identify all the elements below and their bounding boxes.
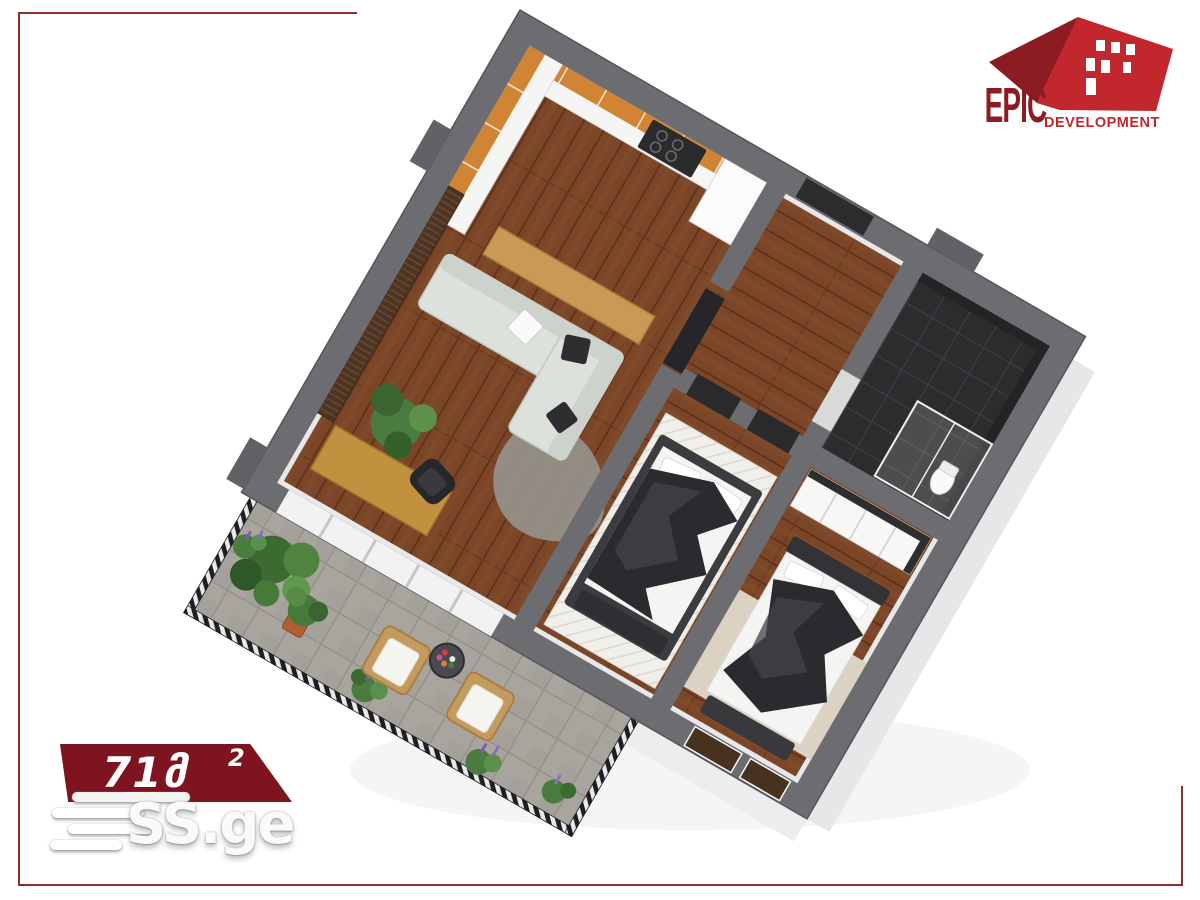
epic-development-logo: EPIC DEVELOPMENT bbox=[960, 0, 1200, 160]
logo-tagline-text: DEVELOPMENT bbox=[1044, 115, 1160, 131]
frame-border-right bbox=[1181, 786, 1183, 886]
logo-brand-text: EPIC bbox=[985, 79, 1047, 133]
area-exponent: 2 bbox=[228, 744, 245, 772]
watermark-bar-icon bbox=[50, 840, 122, 850]
frame-border-left bbox=[18, 12, 20, 886]
watermark-text: SS.ge bbox=[126, 792, 294, 857]
black-pillow bbox=[560, 334, 591, 365]
ssge-watermark: SS.ge bbox=[48, 786, 328, 870]
frame-border-top bbox=[18, 12, 357, 14]
frame-border-bottom bbox=[18, 884, 1183, 886]
listing-image: EPIC DEVELOPMENT 71მ 2 SS.ge bbox=[0, 0, 1200, 900]
